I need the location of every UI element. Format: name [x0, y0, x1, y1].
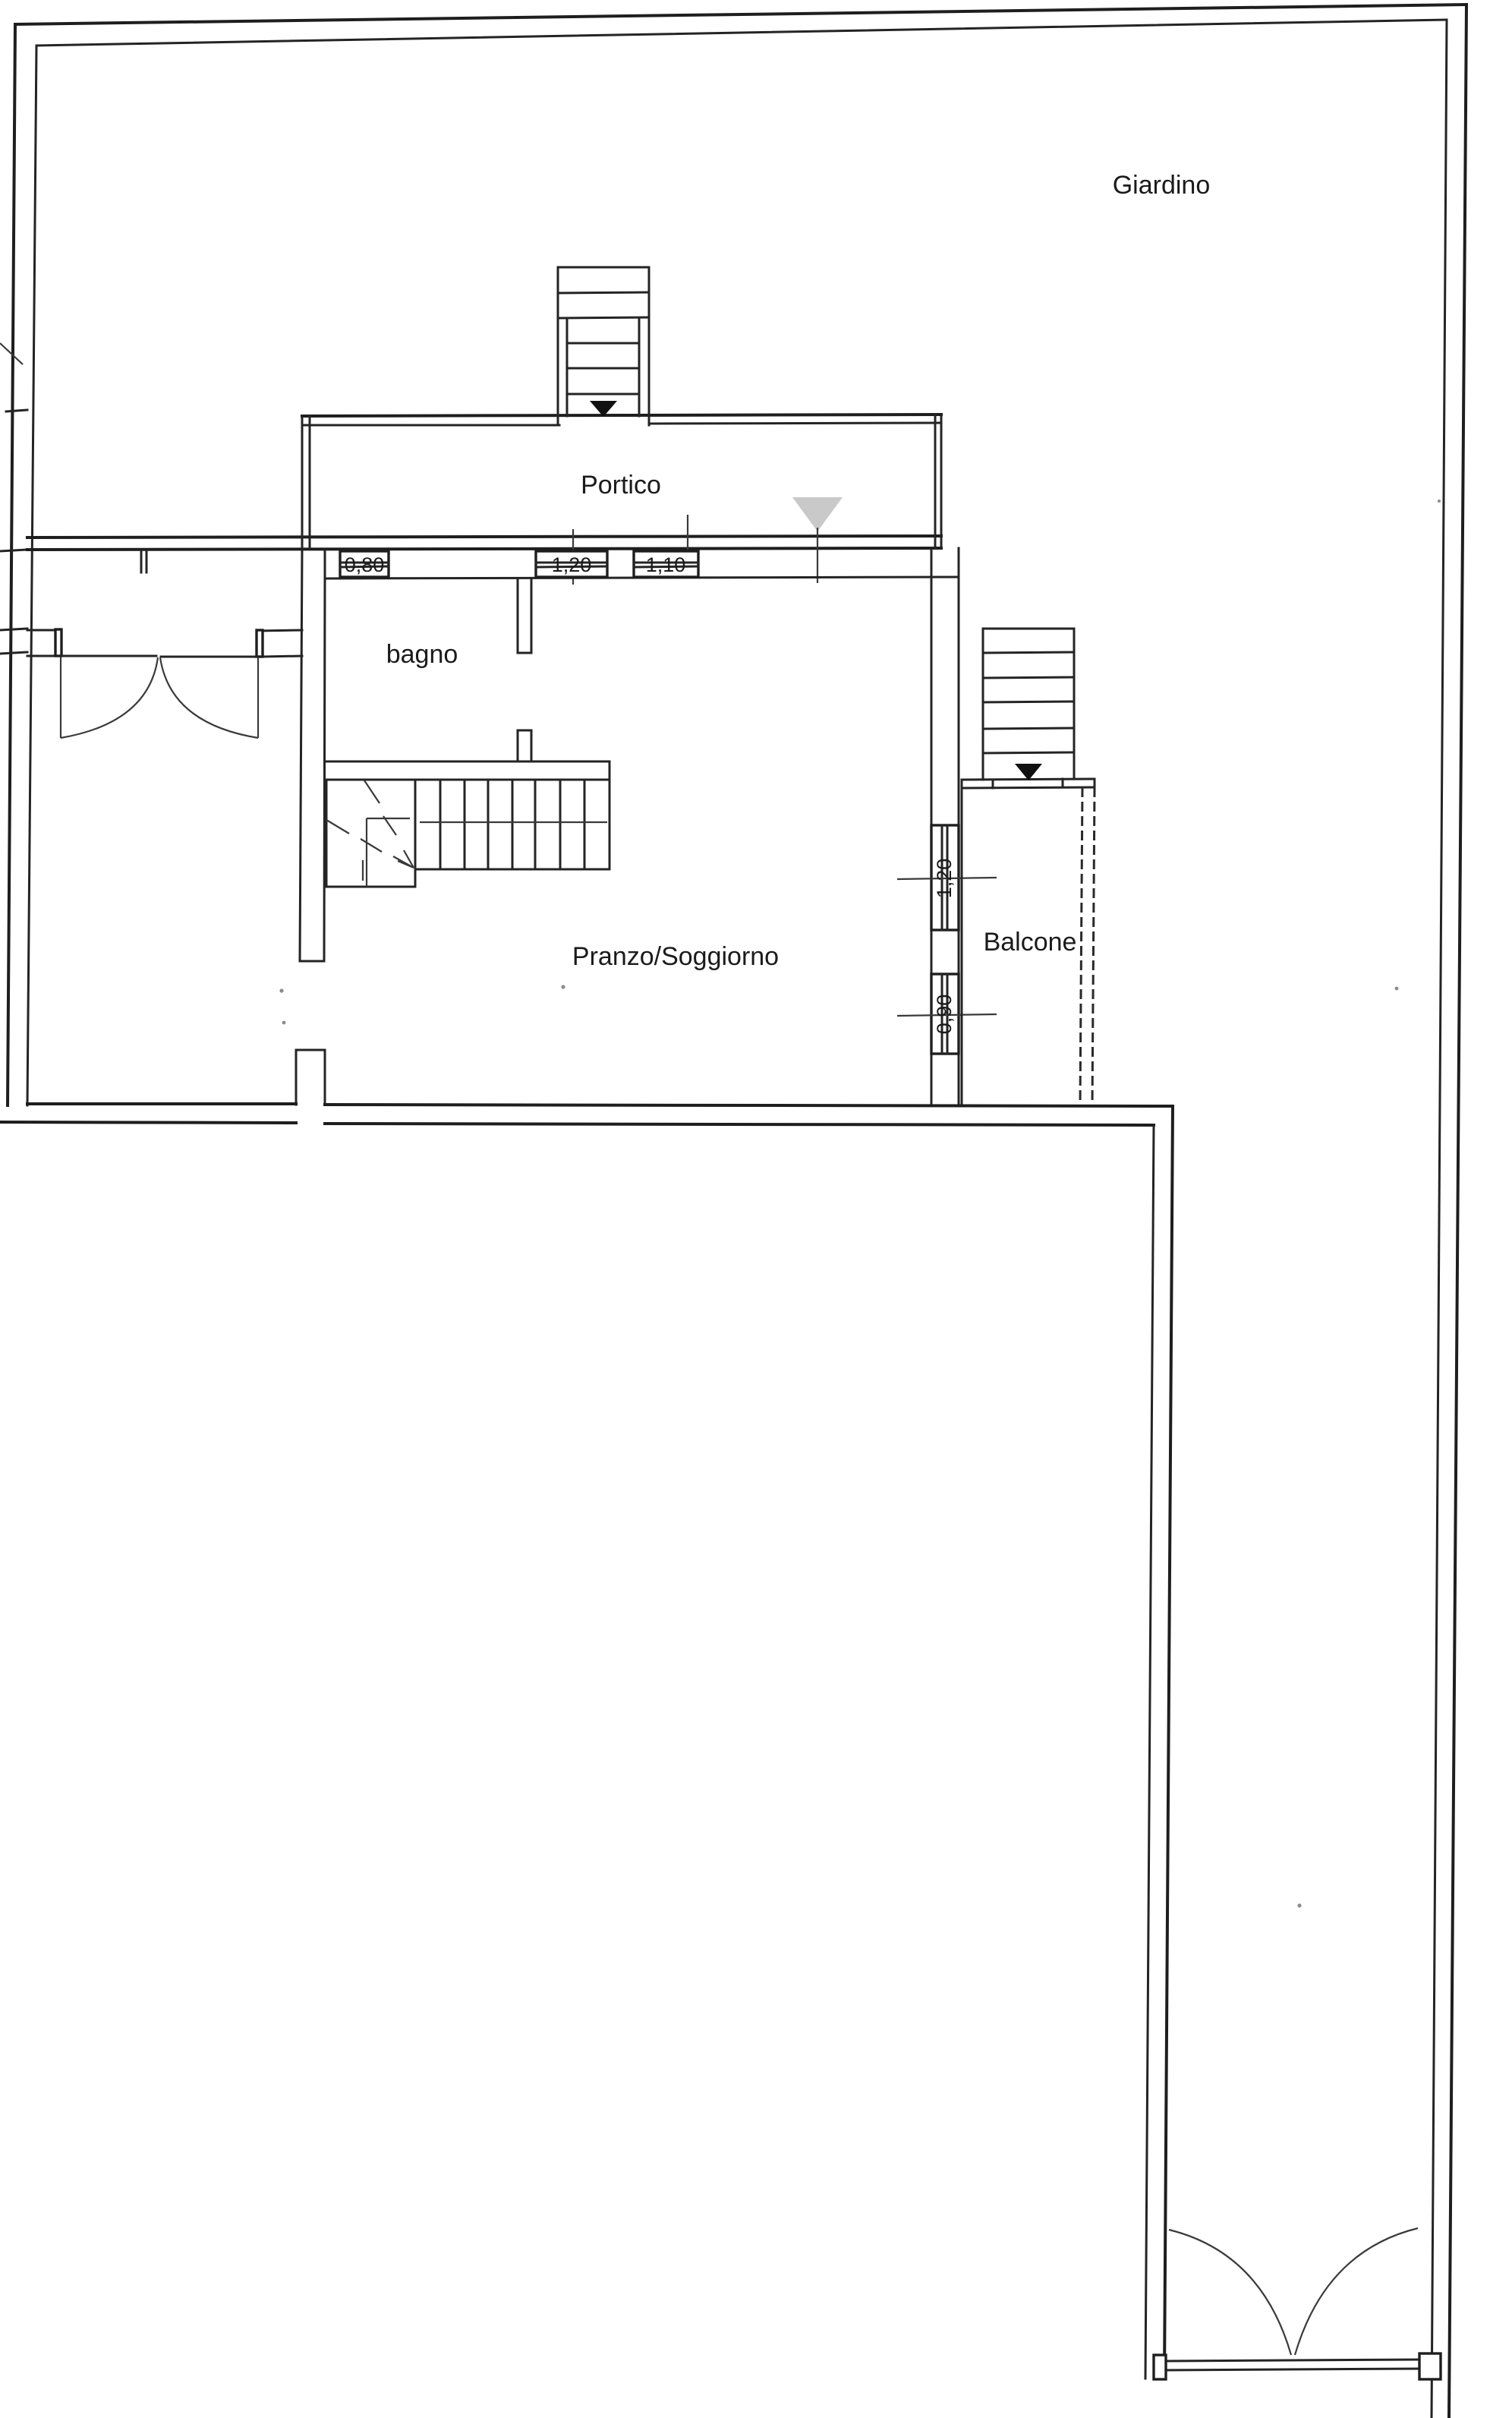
bagno-room: bagno — [325, 578, 610, 780]
gate-swing-arc — [1169, 2230, 1291, 2355]
dim-east-french-door: 1,20 — [933, 859, 956, 899]
floor-plan-sheet: Portico 0,80 1,20 — [0, 0, 1512, 2418]
pranzo-soggiorno-label: Pranzo/Soggiorno — [572, 942, 779, 971]
window-north-large: 1,20 — [536, 551, 607, 577]
balcone-area: Balcone — [962, 779, 1095, 1105]
floor-plan-drawing: Portico 0,80 1,20 — [0, 0, 1512, 2418]
dim-north-large: 1,20 — [552, 553, 592, 576]
door-swing-arc — [160, 657, 258, 738]
east-yard-wall — [1145, 1106, 1173, 2379]
garden-boundary-walls — [0, 5, 1466, 2418]
garden-gate-double-door — [1154, 2228, 1441, 2379]
east-window-wall: 1,20 0,90 — [897, 548, 997, 1105]
french-door-east: 1,20 — [897, 825, 997, 930]
gate-jamb — [1154, 2355, 1166, 2379]
dim-north-small: 1,10 — [646, 553, 686, 576]
door-jamb — [55, 629, 61, 656]
balcony-exterior-staircase — [983, 629, 1074, 780]
window-east: 0,90 — [897, 974, 997, 1054]
left-double-door — [27, 629, 302, 738]
giardino-label: Giardino — [1113, 171, 1211, 200]
west-wall — [279, 548, 325, 1105]
entrance-marker-icon — [792, 497, 843, 531]
pranzo-soggiorno-room: Pranzo/Soggiorno — [561, 942, 779, 989]
portico-area: Portico — [302, 415, 941, 585]
garden-area: Giardino — [1113, 171, 1441, 1908]
portico-label: Portico — [581, 471, 661, 500]
top-exterior-staircase — [558, 267, 649, 425]
dim-bath-window: 0,80 — [345, 553, 385, 576]
gate-jamb — [1419, 2353, 1441, 2379]
gate-swing-arc — [1295, 2228, 1418, 2355]
balcony-parapet — [1092, 787, 1095, 1105]
door-swing-arc — [61, 657, 158, 738]
balcony-parapet — [1080, 787, 1082, 1105]
window-bath: 0,80 — [340, 551, 389, 577]
stair-direction-triangle-icon — [1015, 764, 1042, 780]
bagno-label: bagno — [386, 640, 458, 669]
south-wall — [0, 1104, 1173, 1125]
balcone-label: Balcone — [984, 928, 1077, 957]
dim-east-window: 0,90 — [933, 995, 956, 1035]
north-window-wall: 0,80 1,20 1,10 — [325, 550, 959, 578]
window-north-small: 1,10 — [634, 551, 698, 577]
main-horizontal-wall — [27, 536, 941, 572]
door-jamb — [257, 630, 263, 657]
